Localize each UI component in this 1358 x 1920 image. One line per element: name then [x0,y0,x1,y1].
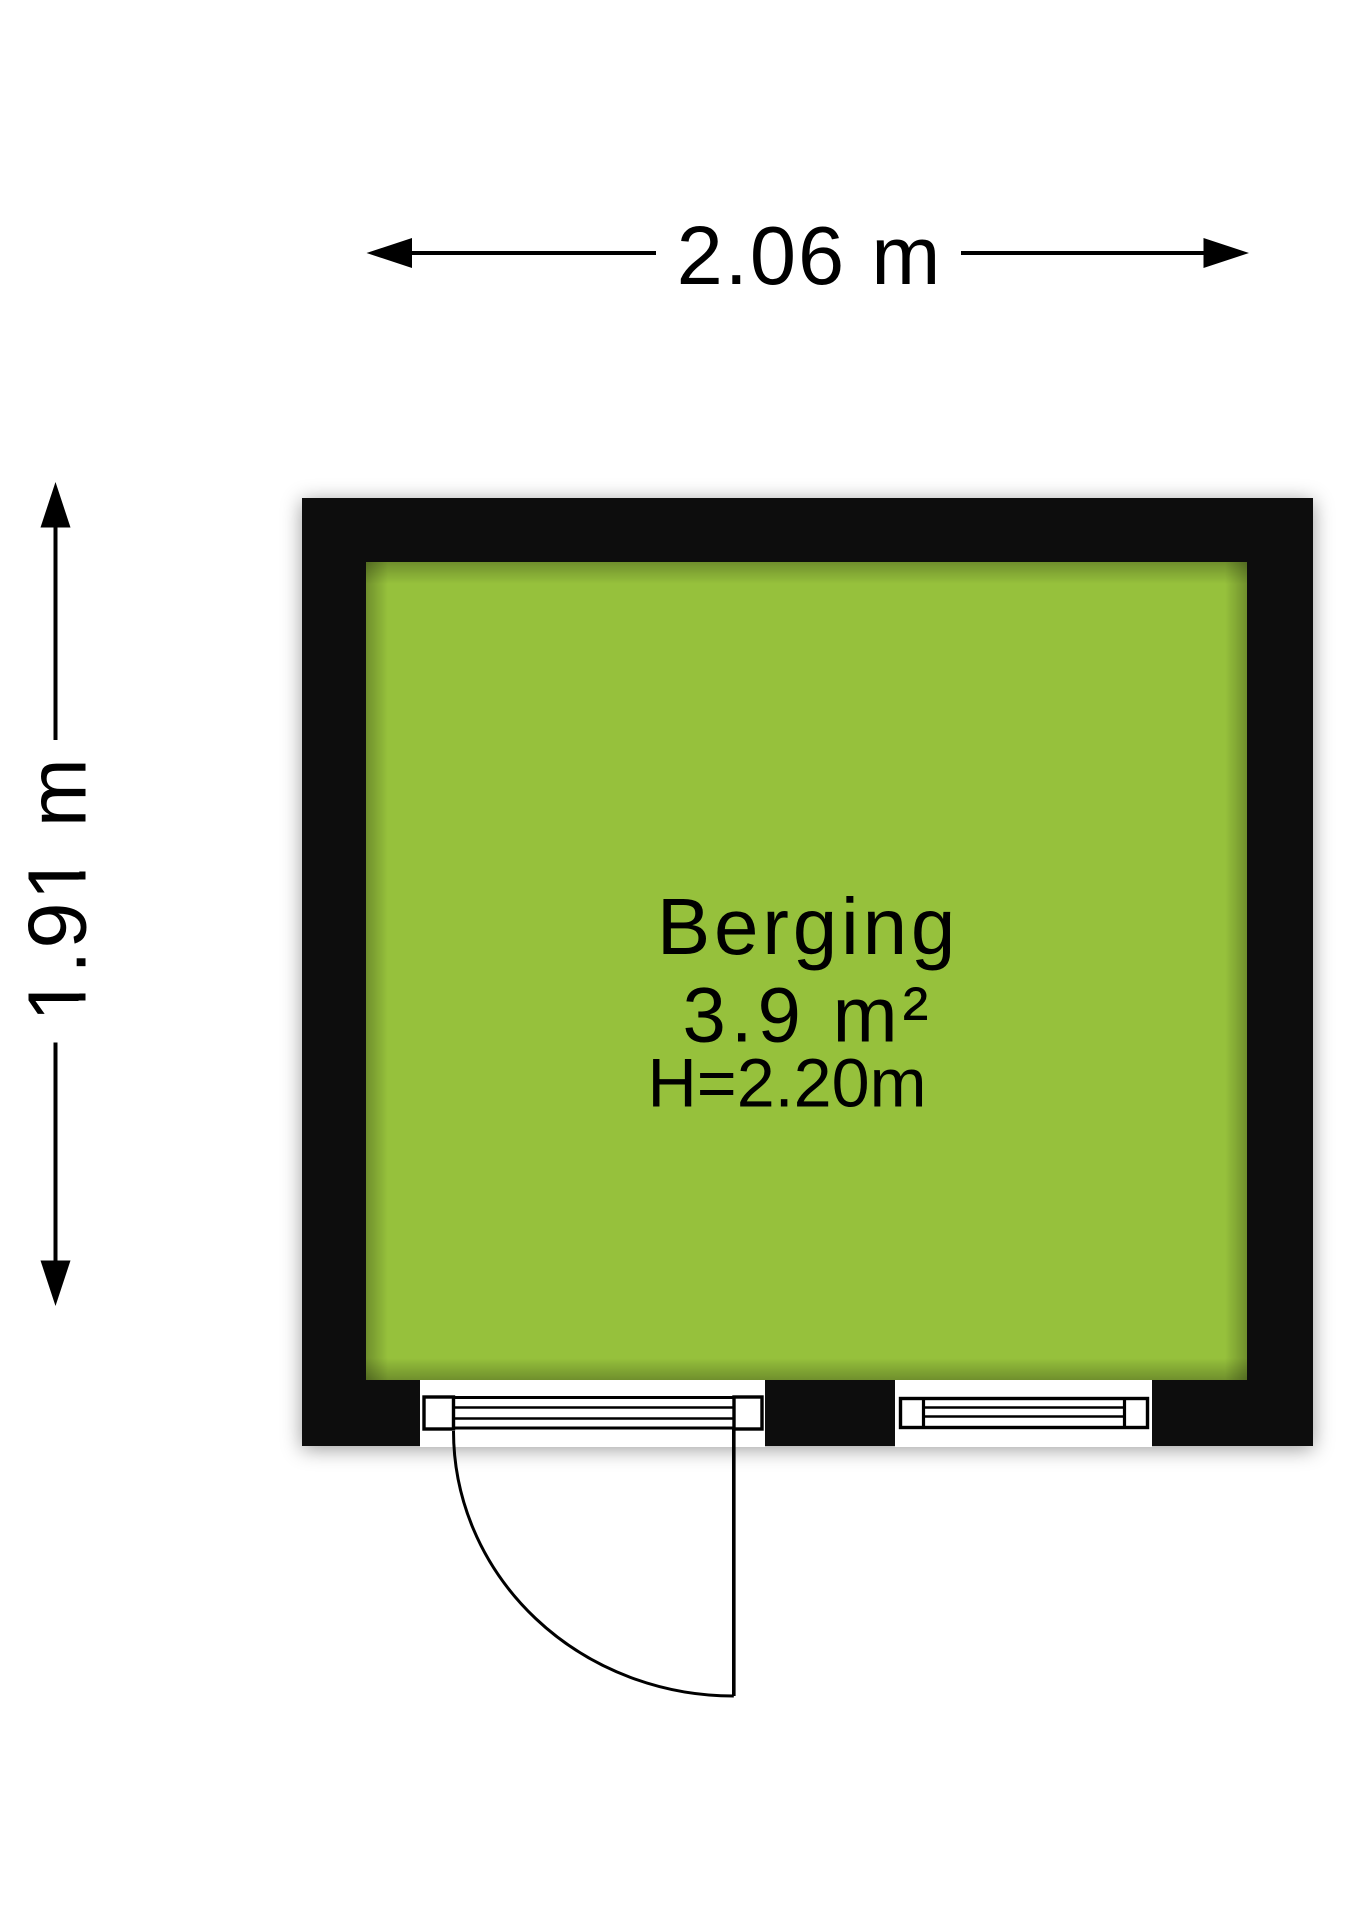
svg-text:2.06 m: 2.06 m [677,209,943,302]
svg-text:H=2.20m: H=2.20m [647,1046,926,1122]
svg-text:Berging: Berging [657,882,959,971]
